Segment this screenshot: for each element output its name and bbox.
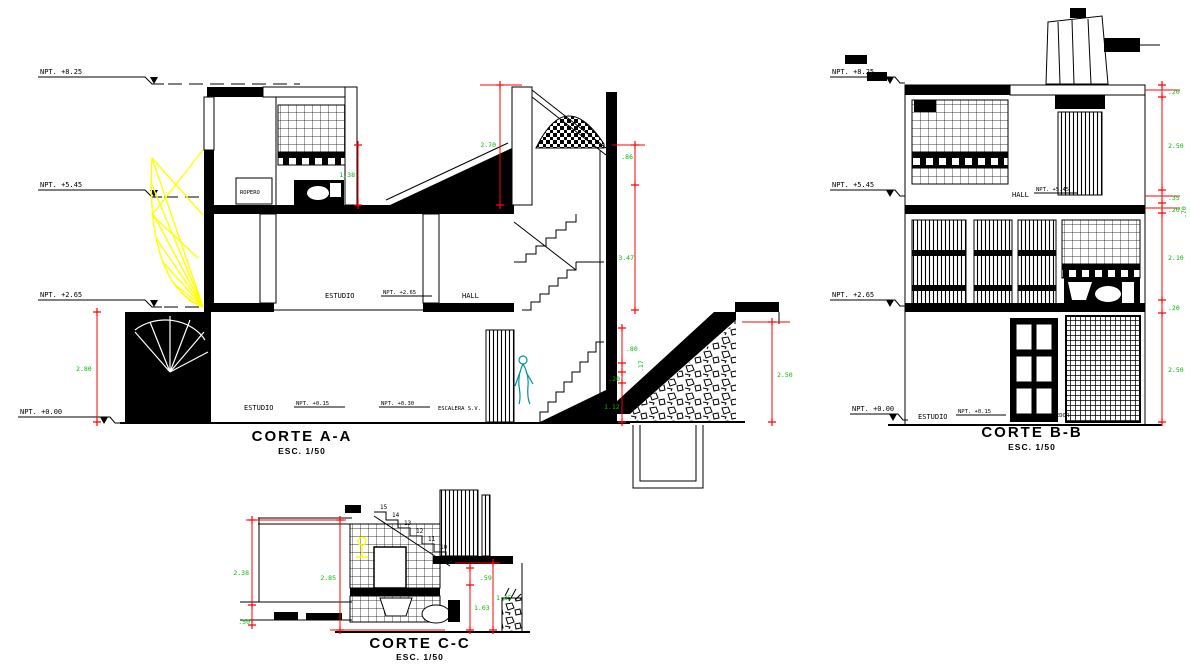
louver-window-1 bbox=[912, 220, 966, 305]
dim-label: 1.12 bbox=[604, 403, 620, 411]
bath-tile-wall-b bbox=[1062, 220, 1140, 266]
corte-a-right-wall bbox=[600, 92, 779, 488]
dim-label: 2.70 bbox=[480, 141, 496, 149]
dim-label: 2.50 bbox=[1168, 366, 1184, 374]
glass-block-wall bbox=[912, 100, 1008, 184]
dim-label: .20 bbox=[1168, 304, 1180, 312]
section-scale-a: ESC. 1/50 bbox=[278, 446, 326, 456]
dim-label: .17 bbox=[637, 360, 645, 372]
room-label-hall-b: HALL bbox=[1012, 191, 1029, 199]
stone-planter bbox=[502, 598, 522, 632]
room-label-estudio1: ESTUDIO bbox=[244, 404, 274, 412]
level-markers-b: NPT. +8.25 NPT. +5.45 NPT. +2.65 NPT. +0… bbox=[830, 68, 908, 421]
section-scale-c: ESC. 1/50 bbox=[396, 652, 444, 662]
section-corte-b: NPT. +8.25 NPT. +5.45 NPT. +2.65 NPT. +0… bbox=[830, 8, 1188, 452]
dim-label: 3.47 bbox=[618, 254, 634, 262]
stair-soffit bbox=[390, 148, 512, 205]
step-number: 14 bbox=[392, 512, 400, 519]
dim-label: 2.85 bbox=[320, 574, 336, 582]
toilet bbox=[422, 605, 450, 623]
section-title-a: CORTE A-A bbox=[252, 428, 353, 445]
level-label: NPT. +8.25 bbox=[40, 68, 82, 76]
room-label-ropero: ROPERO bbox=[240, 190, 260, 196]
dim-label: .50 bbox=[238, 618, 250, 626]
person-figure bbox=[515, 356, 533, 404]
level-label: NPT. +5.45 bbox=[40, 181, 82, 189]
dim-label: .70 bbox=[1180, 206, 1188, 218]
dim-label: 1.38 bbox=[339, 171, 355, 179]
sink bbox=[380, 598, 412, 616]
spiral-stair-highlight bbox=[151, 150, 203, 307]
section-corte-a: NPT. +8.25 NPT. +5.45 NPT. +2.65 NPT. +0… bbox=[18, 68, 793, 488]
lattice-window bbox=[1066, 316, 1140, 422]
dim-label: 2.10 bbox=[1168, 254, 1184, 262]
dim-label: .86 bbox=[621, 153, 633, 161]
stair-railing bbox=[440, 490, 478, 556]
dim-label: .20 bbox=[1168, 206, 1180, 214]
level-label: NPT. +0.00 bbox=[852, 405, 894, 413]
dim-label: 1.35 bbox=[496, 594, 512, 602]
dome-roof bbox=[536, 116, 604, 148]
level-label-npt015: NPT. +0.15 bbox=[296, 401, 329, 407]
sections-drawing: NPT. +8.25 NPT. +5.45 NPT. +2.65 NPT. +0… bbox=[0, 0, 1190, 664]
room-label-escalera: ESCALERA S.V. bbox=[438, 406, 481, 412]
section-corte-c: 15 14 13 12 11 10 2.38 . bbox=[233, 490, 530, 662]
dim-label: .80 bbox=[626, 345, 638, 353]
dim-label: .20 bbox=[608, 375, 620, 383]
corte-b-building: HALL NPT. +5.45 ESTUDIO NPT. +0.15 COMED… bbox=[888, 85, 1162, 425]
level-label-npt2: NPT. +2.65 bbox=[383, 290, 416, 296]
stair-flight-upper bbox=[514, 214, 576, 262]
planter-cap bbox=[735, 302, 779, 312]
section-scale-b: ESC. 1/50 bbox=[1008, 442, 1056, 452]
louver-door bbox=[486, 330, 514, 422]
room-label-estudio-b: ESTUDIO bbox=[918, 413, 948, 421]
dim-label: .35 bbox=[1168, 194, 1180, 202]
step-number: 15 bbox=[380, 504, 388, 511]
level-label: NPT. +2.65 bbox=[40, 291, 82, 299]
section-title-c: CORTE C-C bbox=[369, 635, 470, 652]
dim-label: 2.80 bbox=[76, 365, 92, 373]
dim-label: 2.50 bbox=[777, 371, 793, 379]
louver-window-2 bbox=[974, 220, 1012, 305]
level-label: NPT. +5.45 bbox=[832, 181, 874, 189]
step-number: 13 bbox=[404, 520, 412, 527]
dim-label: 2.50 bbox=[1168, 142, 1184, 150]
hall-curtain bbox=[1058, 112, 1102, 195]
corte-a-middle-floor: ESTUDIO NPT. +2.65 HALL bbox=[204, 205, 604, 312]
level-label: NPT. +2.65 bbox=[832, 291, 874, 299]
panel-door bbox=[1010, 318, 1058, 422]
level-label-npt015-b: NPT. +0.15 bbox=[958, 409, 991, 415]
level-label-npt030: NPT. +0.30 bbox=[381, 401, 414, 407]
step-number: 11 bbox=[428, 536, 436, 543]
louver-window-3 bbox=[1018, 220, 1056, 305]
roof-tank bbox=[845, 8, 1160, 84]
room-label-hall: HALL bbox=[462, 292, 479, 300]
section-title-b: CORTE B-B bbox=[981, 424, 1082, 441]
rubble-fill bbox=[630, 322, 736, 422]
mirror bbox=[374, 547, 406, 588]
dim-label: 1.03 bbox=[474, 604, 490, 612]
corte-b-dimensions: .20 2.50 .35 .20 .70 2.10 .20 2.50 bbox=[1145, 85, 1188, 422]
dim-label: 2.38 bbox=[233, 569, 249, 577]
cad-drawing-sheet: NPT. +8.25 NPT. +5.45 NPT. +2.65 NPT. +0… bbox=[0, 0, 1190, 664]
level-label: NPT. +0.00 bbox=[20, 408, 62, 416]
stair-flight-lower bbox=[522, 262, 604, 310]
tile-band bbox=[278, 152, 345, 165]
cistern-pit bbox=[633, 425, 703, 488]
bathroom-tile-wall bbox=[278, 105, 345, 152]
room-label-estudio2: ESTUDIO bbox=[325, 292, 355, 300]
level-label-hall-b: NPT. +5.45 bbox=[1036, 187, 1069, 193]
step-number: 12 bbox=[416, 528, 424, 535]
dim-label: .59 bbox=[480, 574, 492, 582]
accent-tile-band bbox=[912, 152, 1008, 168]
dim-label: .20 bbox=[1168, 88, 1180, 96]
